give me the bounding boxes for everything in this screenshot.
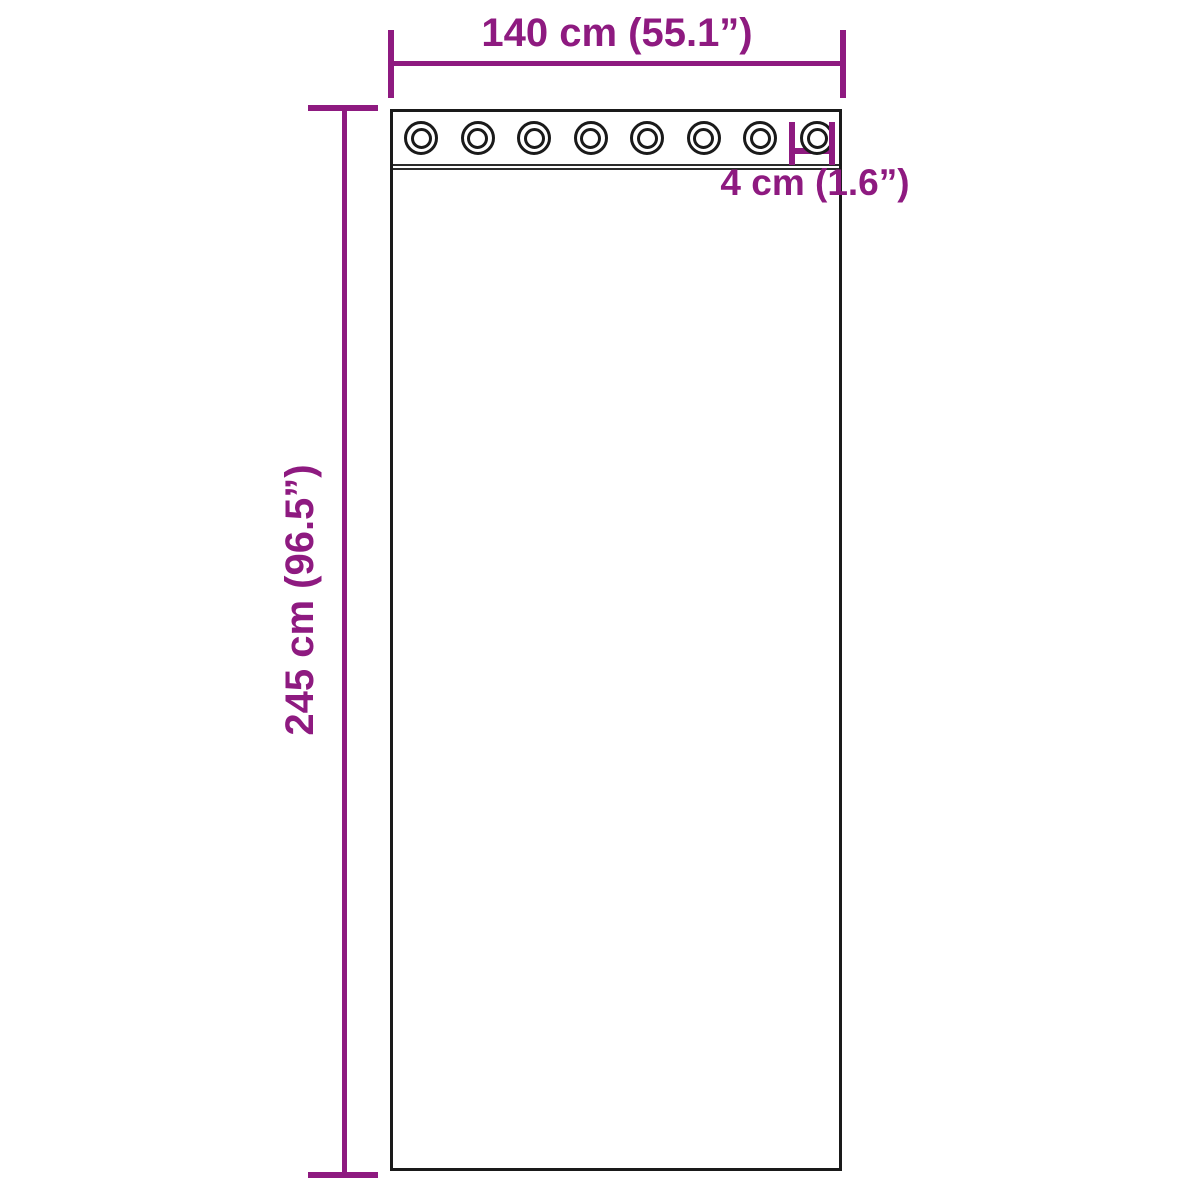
grommet-dimension-left-tick [789, 122, 795, 165]
grommet-ring [517, 121, 551, 155]
grommet-ring [461, 121, 495, 155]
grommet-ring [574, 121, 608, 155]
grommet-inner-ring [750, 128, 771, 149]
width-dimension-line [390, 61, 844, 66]
grommet-inner-ring [807, 128, 828, 149]
grommet-ring [404, 121, 438, 155]
grommet-dimension-label: 4 cm (1.6”) [655, 163, 975, 204]
height-dimension-top-tick [308, 105, 378, 111]
grommet-inner-ring [524, 128, 545, 149]
width-dimension-label: 140 cm (55.1”) [390, 11, 844, 55]
grommet-inner-ring [467, 128, 488, 149]
height-dimension-label: 245 cm (96.5”) [278, 300, 324, 900]
grommet-inner-ring [693, 128, 714, 149]
grommet-inner-ring [580, 128, 601, 149]
dimension-diagram-canvas: 140 cm (55.1”) 245 cm (96.5”) 4 cm (1.6”… [0, 0, 1200, 1200]
height-dimension-bottom-tick [308, 1172, 378, 1178]
height-dimension-line [342, 107, 347, 1177]
curtain-panel-outline [390, 109, 842, 1171]
width-dimension-right-tick [840, 30, 846, 98]
grommet-ring [687, 121, 721, 155]
grommet-dimension-right-tick [829, 122, 835, 165]
grommet-inner-ring [411, 128, 432, 149]
grommet-inner-ring [637, 128, 658, 149]
width-dimension-left-tick [388, 30, 394, 98]
